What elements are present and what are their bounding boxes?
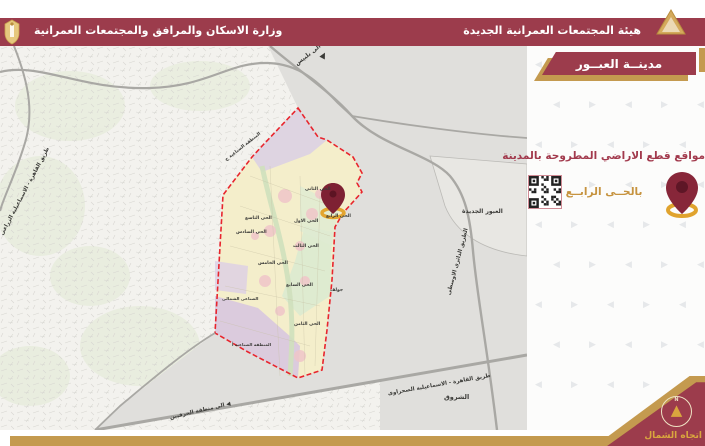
chevron-pattern-icon: ◀	[697, 100, 704, 110]
chevron-pattern-icon: ◀	[679, 220, 686, 230]
chevron-pattern-icon: ▶	[661, 340, 668, 350]
header-bar: وزارة الاسكان والمرافق والمجتمعات العمرا…	[0, 18, 705, 46]
district-label: بالحــى الرابــع	[565, 186, 643, 198]
lavender-patch	[215, 261, 248, 294]
chevron-pattern-icon: ▶	[643, 140, 650, 150]
authority-title: هيئة المجتمعات العمرانية الجديدة	[463, 24, 641, 37]
chevron-pattern-icon: ◀	[535, 220, 542, 230]
city-banner: مدينــة العبــور	[542, 52, 696, 75]
top-white-strip	[0, 0, 705, 18]
app-window: وزارة الاسكان والمرافق والمجتمعات العمرا…	[0, 0, 705, 446]
chevron-pattern-icon: ◀	[553, 340, 560, 350]
city-name: مدينــة العبــور	[576, 57, 662, 71]
ministry-title: وزارة الاسكان والمرافق والمجتمعات العمرا…	[34, 24, 282, 37]
chevron-pattern-icon: ◀	[535, 300, 542, 310]
chevron-pattern-icon: ◀	[697, 260, 704, 270]
chevron-pattern-icon: ◀	[607, 300, 614, 310]
triangle-pattern: ◀▶◀▶◀◀▶◀▶◀◀▶◀▶◀◀▶◀▶◀◀▶◀▶◀◀▶◀▶◀◀▶◀▶◀◀▶◀▶◀…	[527, 46, 705, 430]
north-arrow-icon: ▲	[662, 403, 691, 418]
chevron-pattern-icon: ◀	[679, 140, 686, 150]
chevron-pattern-icon: ◀	[625, 260, 632, 270]
gold-accent-tab	[699, 48, 705, 72]
chevron-pattern-icon: ▶	[661, 100, 668, 110]
chevron-pattern-icon: ▶	[589, 260, 596, 270]
side-panel: ◀▶◀▶◀◀▶◀▶◀◀▶◀▶◀◀▶◀▶◀◀▶◀▶◀◀▶◀▶◀◀▶◀▶◀◀▶◀▶◀…	[527, 46, 705, 430]
chevron-pattern-icon: ◀	[607, 220, 614, 230]
chevron-pattern-icon: ◀	[535, 140, 542, 150]
chevron-pattern-icon: ▶	[589, 100, 596, 110]
chevron-pattern-icon: ▶	[571, 380, 578, 390]
chevron-pattern-icon: ▶	[661, 260, 668, 270]
chevron-pattern-icon: ◀	[625, 340, 632, 350]
location-pin-icon	[660, 170, 704, 218]
egypt-eagle-emblem	[3, 19, 21, 45]
chevron-pattern-icon: ◀	[535, 380, 542, 390]
north-compass-icon: N ▲	[661, 396, 692, 427]
chevron-pattern-icon: ▶	[643, 300, 650, 310]
chevron-pattern-icon: ◀	[553, 100, 560, 110]
panel-heading: مواقع قطع الاراضي المطروحة بالمدينة	[527, 150, 705, 162]
nuca-logo	[655, 8, 687, 44]
chevron-pattern-icon: ▶	[643, 220, 650, 230]
chevron-pattern-icon: ◀	[697, 340, 704, 350]
north-direction-badge: N ▲ اتجاه الشمال	[595, 376, 705, 446]
chevron-pattern-icon: ◀	[625, 100, 632, 110]
map-canvas: الى بلبيس▲العبور الجديدةالطريق الدائرى ا…	[0, 46, 527, 430]
chevron-pattern-icon: ◀	[553, 260, 560, 270]
chevron-pattern-icon: ◀	[607, 140, 614, 150]
map-base	[0, 46, 527, 430]
chevron-pattern-icon: ◀	[679, 300, 686, 310]
north-label: اتجاه الشمال	[644, 431, 702, 441]
chevron-pattern-icon: ▶	[571, 300, 578, 310]
chevron-pattern-icon: ▶	[571, 220, 578, 230]
chevron-pattern-icon: ▶	[571, 140, 578, 150]
chevron-pattern-icon: ▶	[589, 340, 596, 350]
qr-code	[528, 175, 562, 209]
chevron-pattern-icon: ◀	[535, 60, 542, 70]
